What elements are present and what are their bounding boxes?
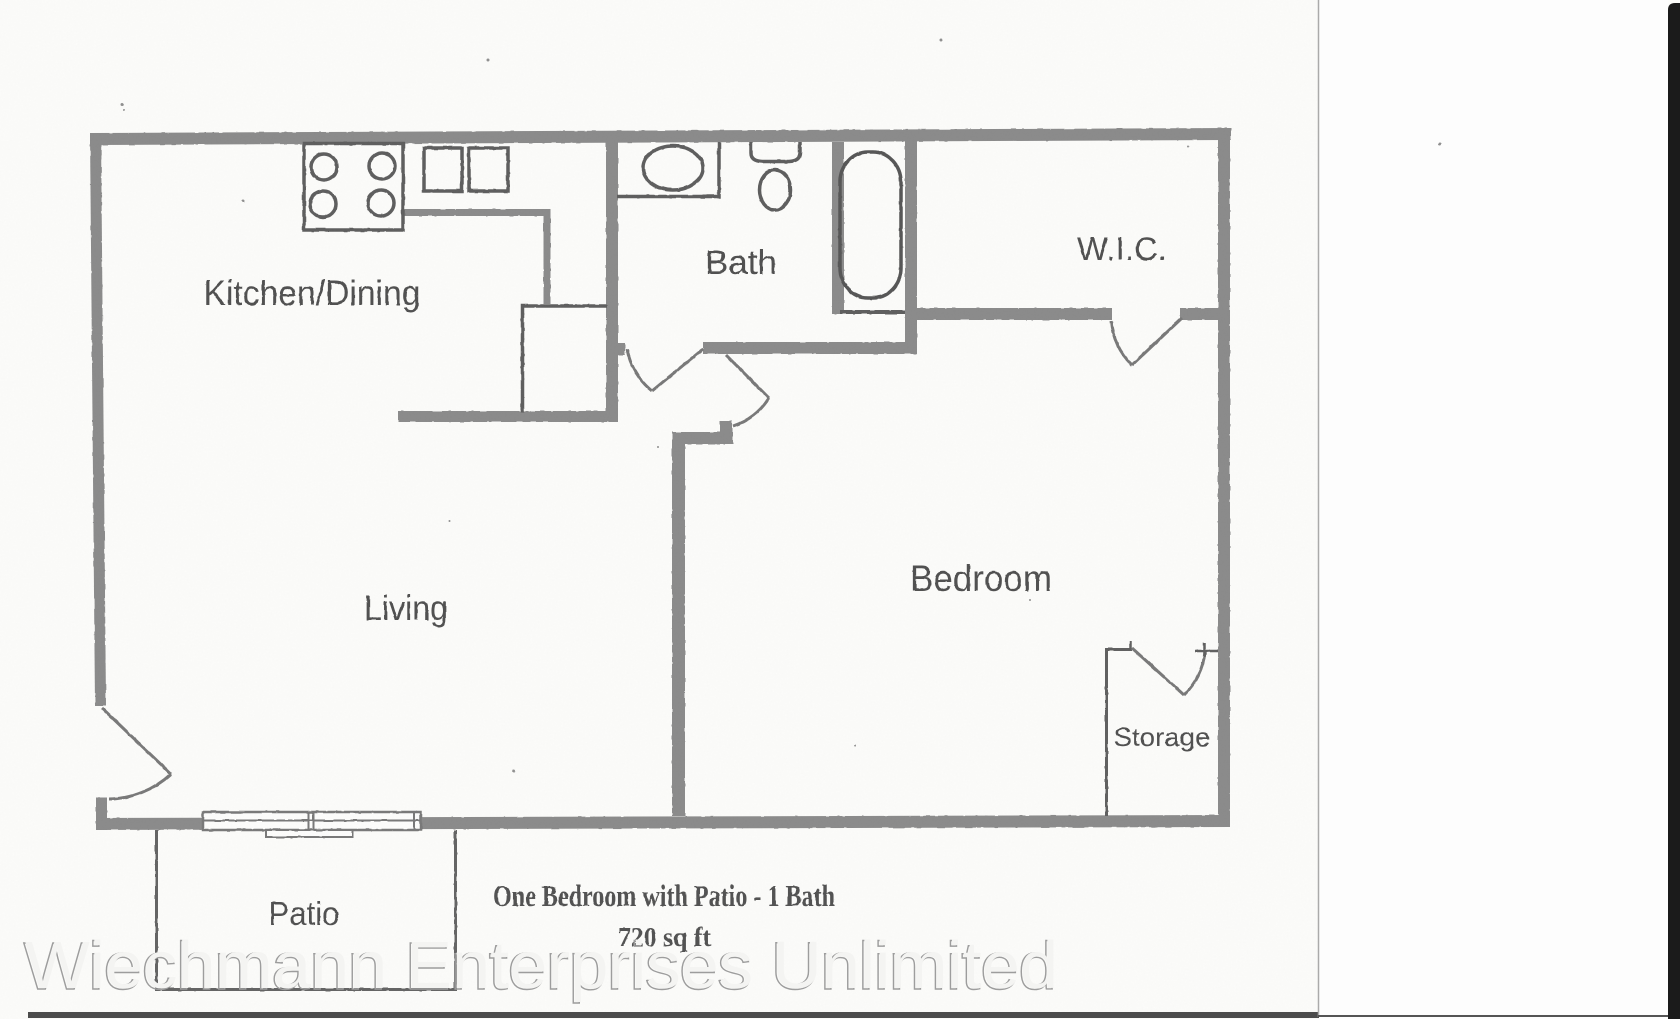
svg-text:Wiechmann Enterprises Unlimite: Wiechmann Enterprises Unlimited: [25, 928, 1058, 1003]
